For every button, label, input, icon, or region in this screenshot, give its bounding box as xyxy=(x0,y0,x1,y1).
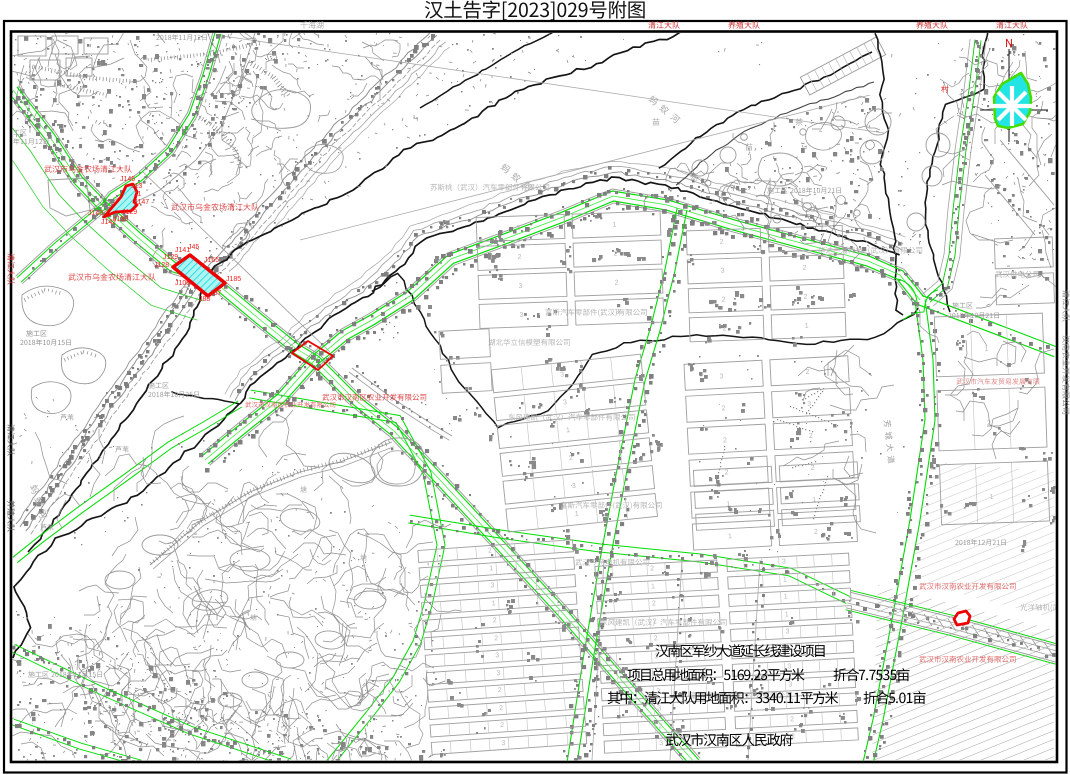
svg-text:1: 1 xyxy=(805,323,809,330)
svg-text:3: 3 xyxy=(490,582,494,589)
svg-text:2: 2 xyxy=(488,547,492,554)
svg-text:1: 1 xyxy=(492,600,496,607)
svg-text:2: 2 xyxy=(652,600,656,607)
svg-text:2: 2 xyxy=(517,254,521,261)
svg-text:3: 3 xyxy=(495,652,499,659)
svg-text:3: 3 xyxy=(788,681,792,688)
svg-text:J88: J88 xyxy=(199,296,210,303)
svg-text:2: 2 xyxy=(790,716,794,723)
svg-text:3: 3 xyxy=(787,663,791,670)
svg-text:J146: J146 xyxy=(120,176,135,183)
svg-text:3: 3 xyxy=(657,705,661,712)
svg-text:1: 1 xyxy=(984,346,988,353)
svg-text:2: 2 xyxy=(614,280,618,287)
svg-text:3: 3 xyxy=(785,628,789,635)
svg-text:2: 2 xyxy=(494,635,498,642)
svg-text:J165: J165 xyxy=(204,257,219,264)
svg-text:1: 1 xyxy=(728,533,732,540)
svg-text:2: 2 xyxy=(499,705,503,712)
svg-text:3: 3 xyxy=(519,312,523,319)
svg-text:1: 1 xyxy=(489,565,493,572)
svg-text:3: 3 xyxy=(807,401,811,408)
svg-text:J141: J141 xyxy=(175,247,190,254)
svg-text:3: 3 xyxy=(720,373,724,380)
svg-text:1: 1 xyxy=(612,222,616,229)
svg-text:3: 3 xyxy=(721,268,725,275)
svg-text:2: 2 xyxy=(802,265,806,272)
svg-text:J87: J87 xyxy=(210,290,221,297)
svg-text:3: 3 xyxy=(496,670,500,677)
svg-text:3: 3 xyxy=(518,283,522,290)
svg-text:2: 2 xyxy=(804,294,808,301)
svg-text:J147: J147 xyxy=(134,199,149,206)
svg-text:2: 2 xyxy=(805,369,809,376)
svg-text:2: 2 xyxy=(725,469,729,476)
svg-text:2: 2 xyxy=(791,733,795,740)
svg-text:2: 2 xyxy=(722,297,726,304)
svg-text:2: 2 xyxy=(493,617,497,624)
svg-text:J129: J129 xyxy=(122,209,137,216)
svg-text:J130: J130 xyxy=(113,216,128,223)
svg-text:2: 2 xyxy=(720,239,724,246)
svg-text:1: 1 xyxy=(784,593,788,600)
svg-text:1: 1 xyxy=(651,583,655,590)
svg-text:1: 1 xyxy=(785,611,789,618)
svg-text:3: 3 xyxy=(501,740,505,747)
svg-text:2: 2 xyxy=(814,529,818,536)
svg-text:J108: J108 xyxy=(175,280,190,287)
svg-text:2: 2 xyxy=(500,722,504,729)
svg-text:J129: J129 xyxy=(163,254,178,261)
svg-text:3: 3 xyxy=(782,558,786,565)
svg-text:J128: J128 xyxy=(154,262,169,269)
svg-text:2: 2 xyxy=(613,251,617,258)
svg-text:2: 2 xyxy=(723,437,727,444)
svg-text:1: 1 xyxy=(812,497,816,504)
svg-text:2: 2 xyxy=(809,433,813,440)
svg-text:2: 2 xyxy=(650,565,654,572)
svg-text:3: 3 xyxy=(516,225,520,232)
svg-text:J13: J13 xyxy=(131,183,142,190)
svg-text:3: 3 xyxy=(659,740,663,747)
svg-text:1: 1 xyxy=(783,576,787,583)
svg-text:J143: J143 xyxy=(88,210,103,217)
svg-text:2: 2 xyxy=(498,687,502,694)
svg-text:J185: J185 xyxy=(226,276,241,283)
svg-text:2: 2 xyxy=(654,635,658,642)
svg-text:2: 2 xyxy=(721,405,725,412)
svg-text:J1: J1 xyxy=(134,191,142,198)
svg-text:2: 2 xyxy=(658,723,662,730)
svg-text:2: 2 xyxy=(810,465,814,472)
